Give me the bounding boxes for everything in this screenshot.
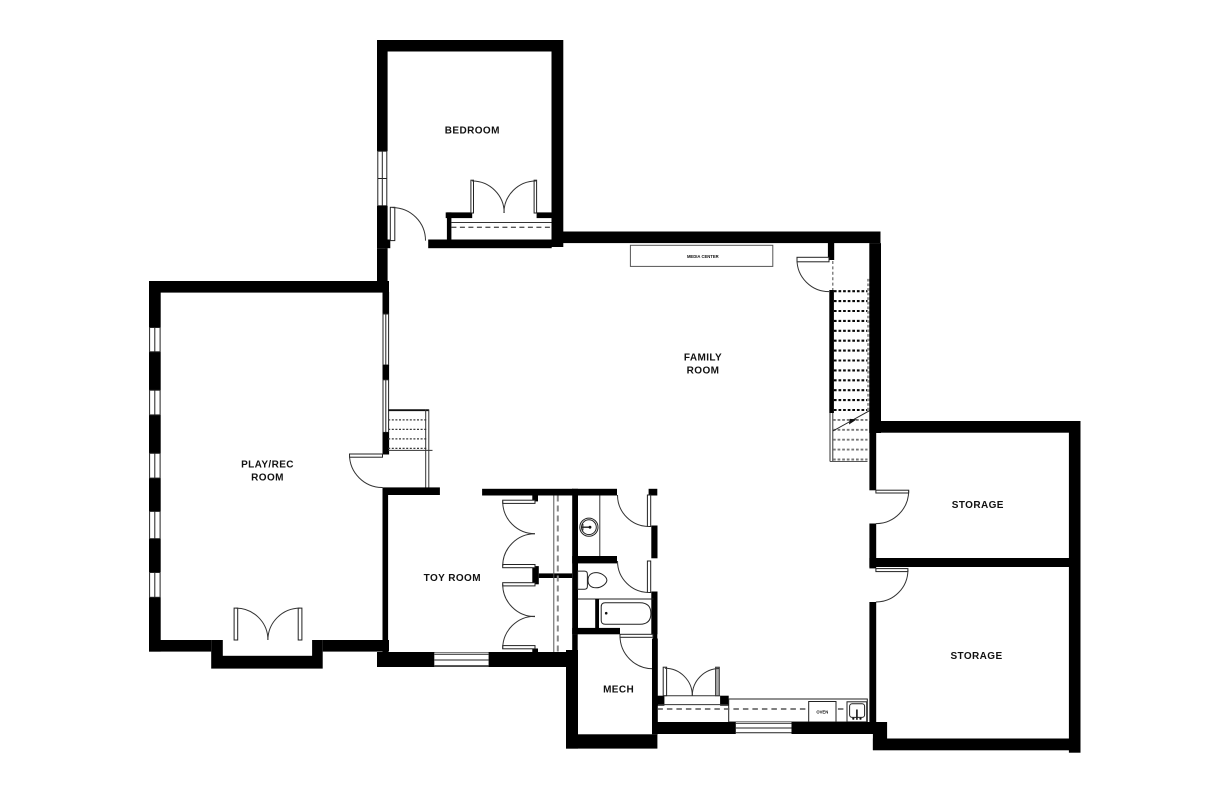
svg-text:BEDROOM: BEDROOM	[445, 126, 500, 137]
svg-text:ROOM: ROOM	[251, 473, 284, 484]
svg-text:TOY ROOM: TOY ROOM	[424, 573, 481, 584]
svg-text:FAMILY: FAMILY	[684, 353, 722, 364]
svg-text:STORAGE: STORAGE	[950, 651, 1002, 662]
svg-text:ROOM: ROOM	[687, 366, 720, 377]
svg-text:OVEN: OVEN	[816, 710, 828, 715]
svg-text:MEDIA CENTER: MEDIA CENTER	[687, 254, 719, 259]
svg-text:PLAY/REC: PLAY/REC	[241, 460, 294, 471]
svg-text:STORAGE: STORAGE	[952, 500, 1004, 511]
svg-text:MECH: MECH	[603, 685, 634, 696]
